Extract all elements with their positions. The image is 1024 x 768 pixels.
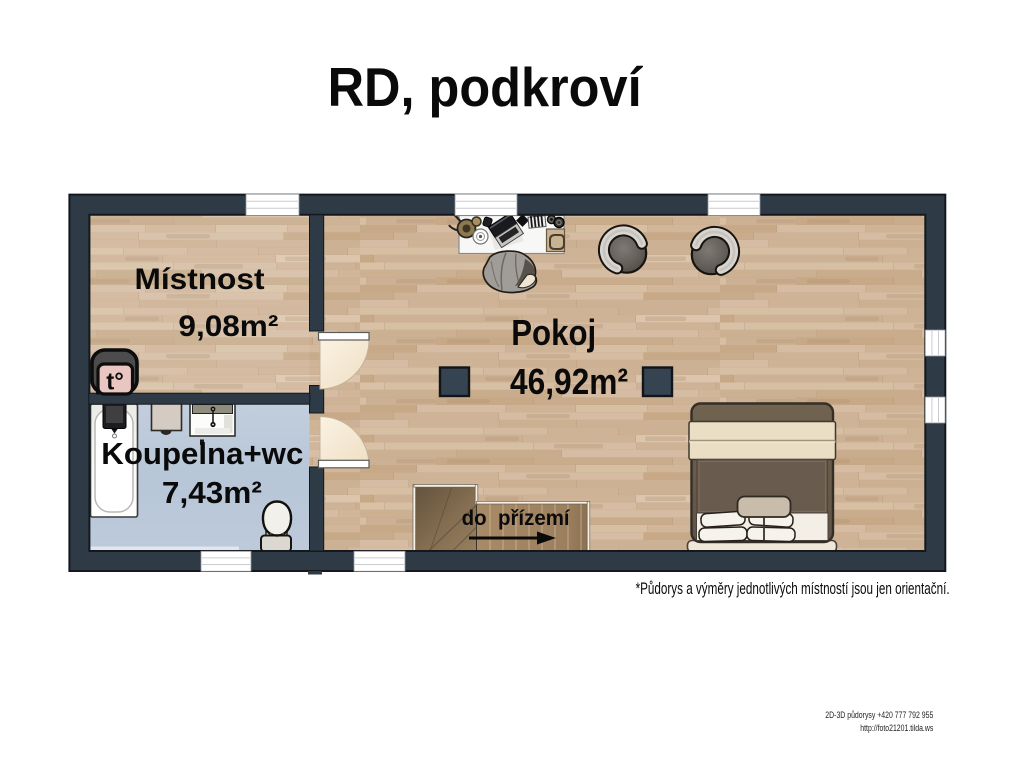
- svg-text:*Půdorys a výměry jednotlivých: *Půdorys a výměry jednotlivých místností…: [636, 580, 950, 598]
- svg-text:9,08m²: 9,08m²: [178, 310, 278, 343]
- svg-text:7,43m²: 7,43m²: [162, 475, 262, 510]
- svg-text:Místnost: Místnost: [135, 263, 265, 296]
- svg-text:http://foto21201.tilda.ws: http://foto21201.tilda.ws: [860, 723, 933, 734]
- svg-text:Koupelna+wc: Koupelna+wc: [101, 436, 303, 471]
- svg-text:2D-3D půdorysy +420 777 792 95: 2D-3D půdorysy +420 777 792 955: [825, 710, 933, 721]
- svg-text:do přízemí: do přízemí: [462, 507, 571, 530]
- svg-text:Pokoj: Pokoj: [511, 312, 596, 353]
- svg-text:46,92m²: 46,92m²: [510, 361, 628, 402]
- svg-text:t°: t°: [106, 369, 124, 396]
- svg-text:RD, podkroví: RD, podkroví: [328, 57, 644, 118]
